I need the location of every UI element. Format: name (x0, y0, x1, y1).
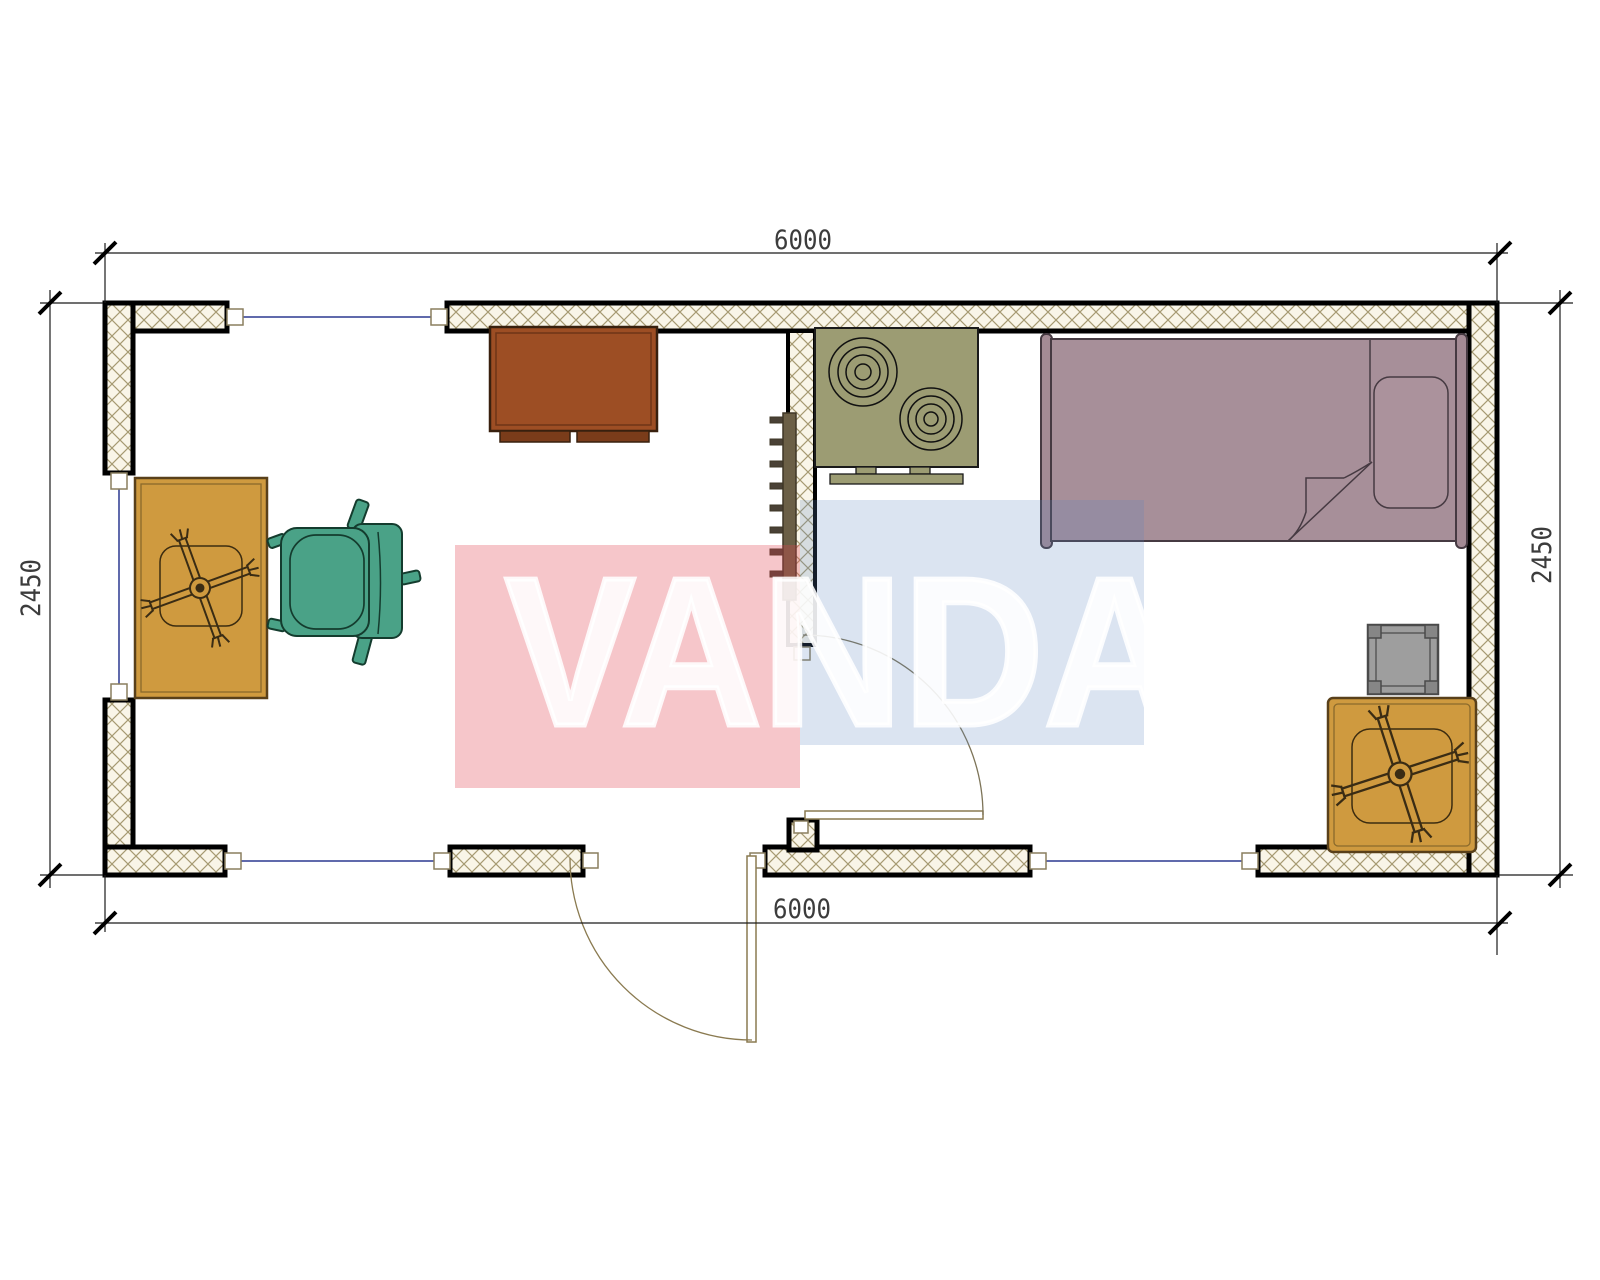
window-bottom-right (1030, 853, 1258, 869)
floor-plan-page: 6000 6000 2450 2450 VANDA (0, 0, 1600, 1280)
dimension-left-label: 2450 (16, 559, 47, 617)
cabinet-drawer (500, 431, 570, 442)
window-bottom-left (225, 853, 450, 869)
vanda-watermark: VANDA (455, 500, 1185, 788)
stove-shelf (830, 474, 963, 484)
tv-cabinet (490, 327, 657, 442)
window-left (111, 473, 127, 700)
dimension-right-label: 2450 (1527, 526, 1558, 584)
interior-door-leaf (805, 811, 983, 819)
floor-plan-drawing: 6000 6000 2450 2450 VANDA (0, 0, 1600, 1280)
pillow (1374, 377, 1448, 508)
desk-with-ceiling-fan (121, 478, 280, 698)
wall-bottom-segment-2 (450, 847, 583, 875)
entry-door (570, 853, 765, 1042)
entry-door-swing-arc (570, 858, 752, 1040)
dimension-bottom-label: 6000 (773, 894, 831, 925)
kitchen-stove (815, 328, 978, 484)
entry-door-leaf (747, 856, 756, 1042)
window-top (227, 309, 447, 325)
chair-seat (281, 528, 369, 636)
watermark-text: VANDA (505, 533, 1185, 770)
side-table (1368, 625, 1438, 694)
cabinet-drawer (577, 431, 649, 442)
bed-headboard (1456, 334, 1467, 548)
dimension-top-label: 6000 (774, 225, 832, 256)
coffee-table-with-ceiling-fan (1310, 684, 1490, 864)
office-chair (267, 499, 421, 665)
wall-left-upper-segment (105, 303, 133, 473)
wall-bottom-left-segment (105, 847, 225, 875)
